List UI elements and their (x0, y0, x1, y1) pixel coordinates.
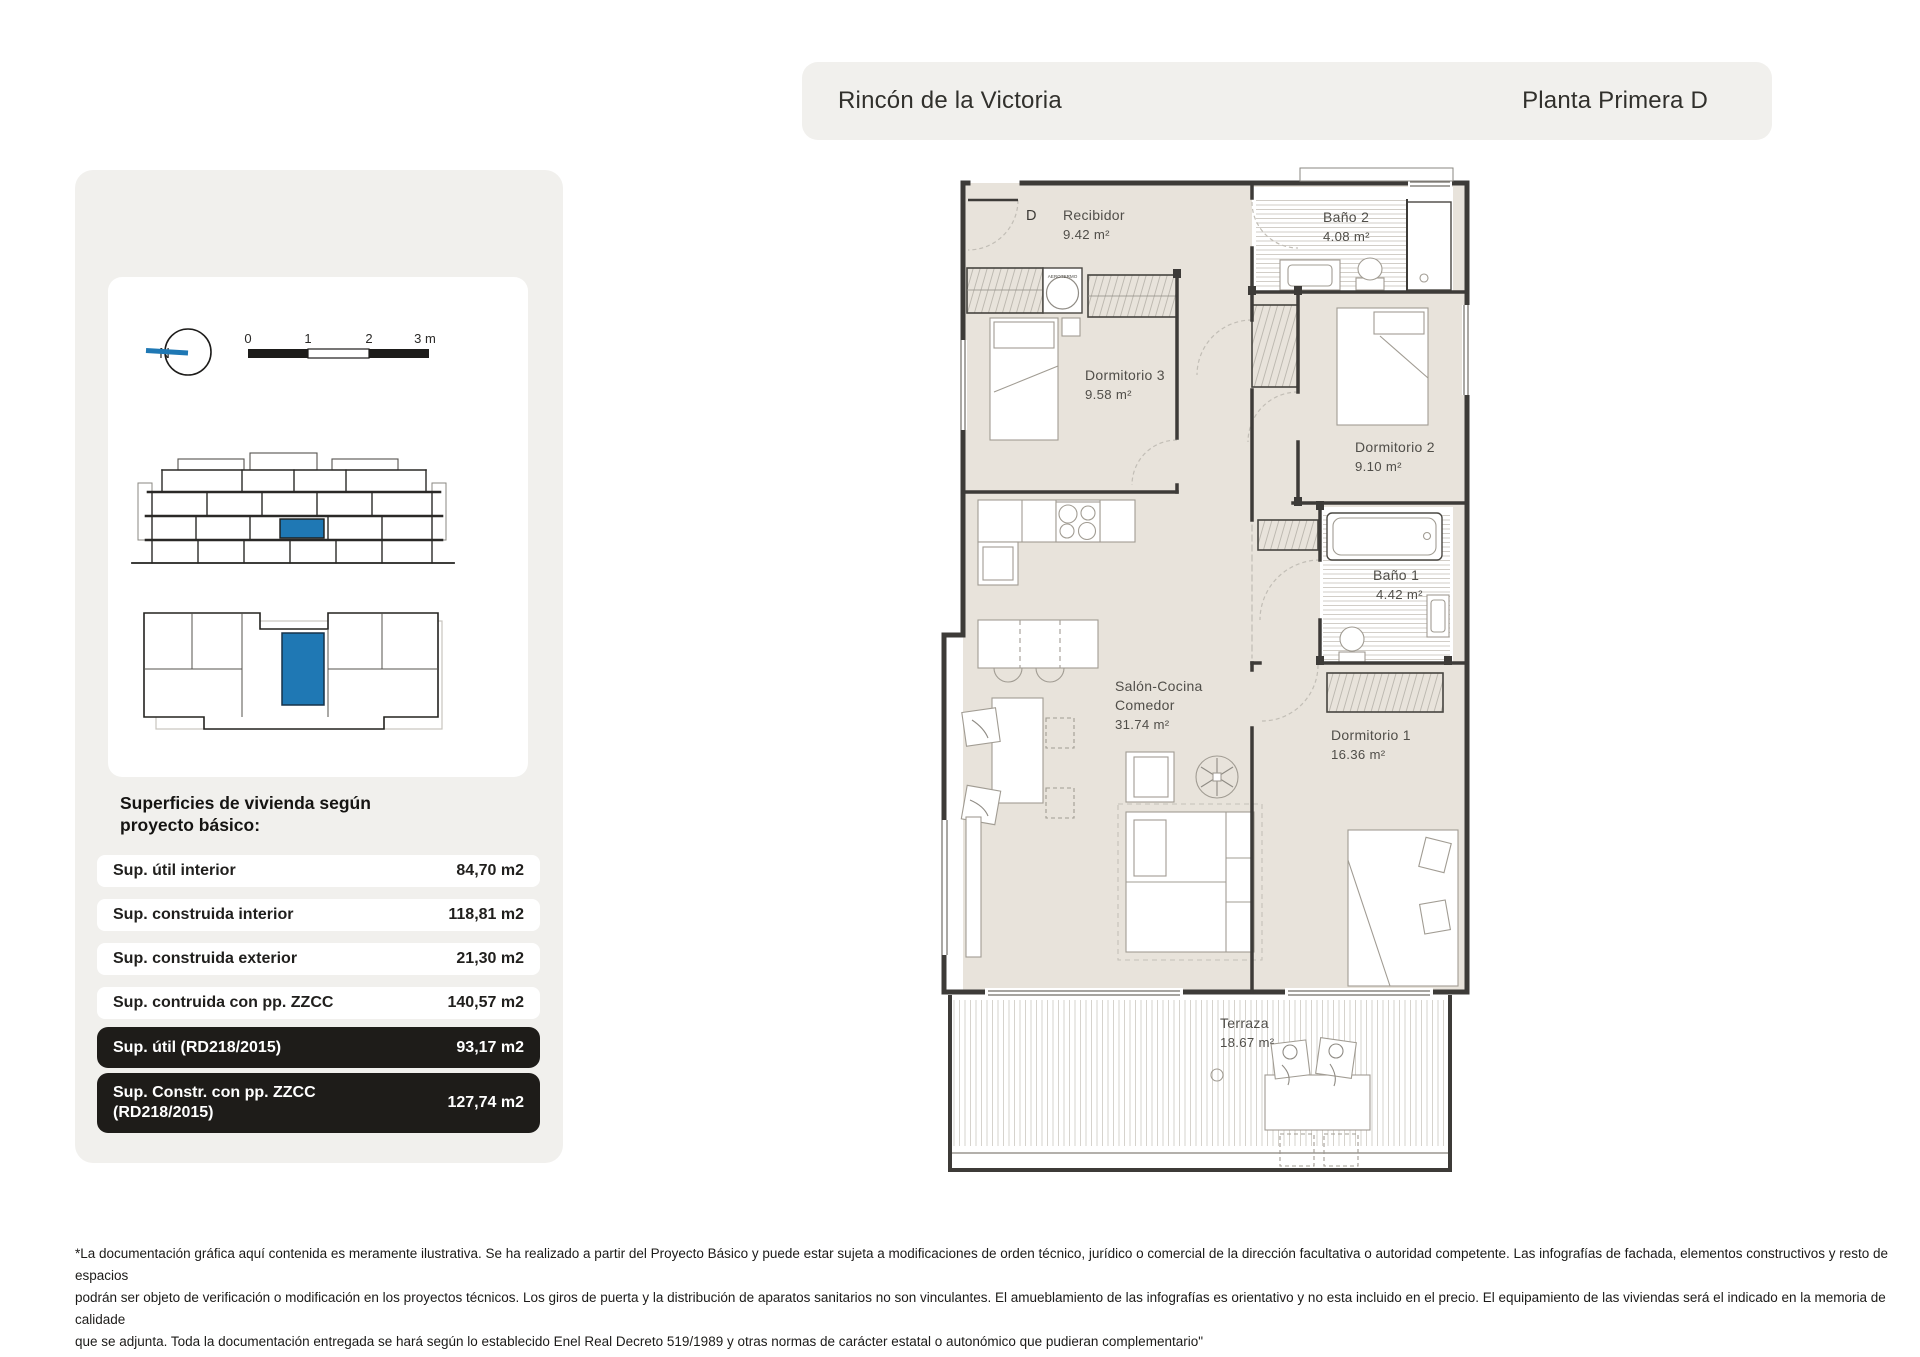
surface-row: Sup. útil interior 84,70 m2 (97, 855, 540, 887)
surface-row: Sup. construida exterior 21,30 m2 (97, 943, 540, 975)
header-band: Rincón de la Victoria Planta Primera D (802, 62, 1772, 140)
highlighted-unit-elevation (280, 519, 324, 538)
surface-row-highlight: Sup. Constr. con pp. ZZCC (RD218/2015) 1… (97, 1073, 540, 1133)
scale-tick-2: 2 (365, 331, 372, 346)
key-graphics: N 0 1 2 3 m (108, 277, 528, 777)
bathtub-icon (1327, 513, 1442, 560)
scale-tick-3: 3 m (414, 331, 436, 346)
toilet-icon (1356, 258, 1384, 290)
armchair-icon (1126, 752, 1174, 802)
surfaces-heading: Superficies de vivienda según proyecto b… (120, 792, 450, 837)
svg-text:Baño 1: Baño 1 (1373, 567, 1419, 583)
svg-text:Terraza: Terraza (1220, 1015, 1269, 1031)
svg-text:Salón-Cocina: Salón-Cocina (1115, 678, 1203, 694)
svg-text:9.42 m²: 9.42 m² (1063, 227, 1110, 242)
highlighted-unit-keyplan (282, 633, 324, 705)
north-compass-icon: N (146, 329, 211, 375)
aerotermo-icon: AEROTERMO (1043, 268, 1082, 313)
scale-tick-0: 0 (244, 331, 251, 346)
svg-text:9.10 m²: 9.10 m² (1355, 459, 1402, 474)
svg-text:31.74 m²: 31.74 m² (1115, 717, 1170, 732)
svg-text:9.58 m²: 9.58 m² (1085, 387, 1132, 402)
disclaimer: *La documentación gráfica aquí contenida… (75, 1243, 1910, 1353)
toilet-icon (1339, 627, 1365, 663)
svg-text:4.08 m²: 4.08 m² (1323, 229, 1370, 244)
aerotermo-label: AEROTERMO (1048, 274, 1078, 279)
entry-door-label: D (1026, 208, 1036, 224)
svg-text:Recibidor: Recibidor (1063, 207, 1125, 223)
scale-bar: 0 1 2 3 m (244, 331, 435, 358)
bed-icon (1348, 830, 1458, 986)
svg-text:Dormitorio 2: Dormitorio 2 (1355, 439, 1435, 455)
sofa-icon (1118, 804, 1262, 960)
sideboard-icon (966, 817, 981, 957)
bed-icon (1337, 308, 1428, 425)
sink-icon (1427, 595, 1449, 637)
scale-tick-1: 1 (304, 331, 311, 346)
key-floorplan-diagram (144, 613, 442, 729)
building-elevation-diagram (132, 453, 454, 563)
svg-text:4.42 m²: 4.42 m² (1376, 587, 1423, 602)
svg-text:Comedor: Comedor (1115, 697, 1175, 713)
surface-row: Sup. construida interior 118,81 m2 (97, 899, 540, 931)
floor-title: Planta Primera D (1522, 87, 1708, 115)
sidebar-card: N 0 1 2 3 m (75, 170, 563, 1163)
project-title: Rincón de la Victoria (838, 87, 1062, 115)
svg-text:Baño 2: Baño 2 (1323, 209, 1369, 225)
location-key-card: N 0 1 2 3 m (108, 277, 528, 777)
surface-row: Sup. contruida con pp. ZZCC 140,57 m2 (97, 987, 540, 1019)
floor-plan: AEROTERMO (930, 140, 1510, 1220)
sink-icon (1280, 260, 1340, 290)
svg-text:Dormitorio 1: Dormitorio 1 (1331, 727, 1411, 743)
svg-text:Dormitorio 3: Dormitorio 3 (1085, 367, 1165, 383)
page: Rincón de la Victoria Planta Primera D N… (0, 0, 1920, 1357)
svg-text:16.36 m²: 16.36 m² (1331, 747, 1386, 762)
surface-row-highlight: Sup. útil (RD218/2015) 93,17 m2 (97, 1027, 540, 1068)
svg-text:18.67 m²: 18.67 m² (1220, 1035, 1275, 1050)
